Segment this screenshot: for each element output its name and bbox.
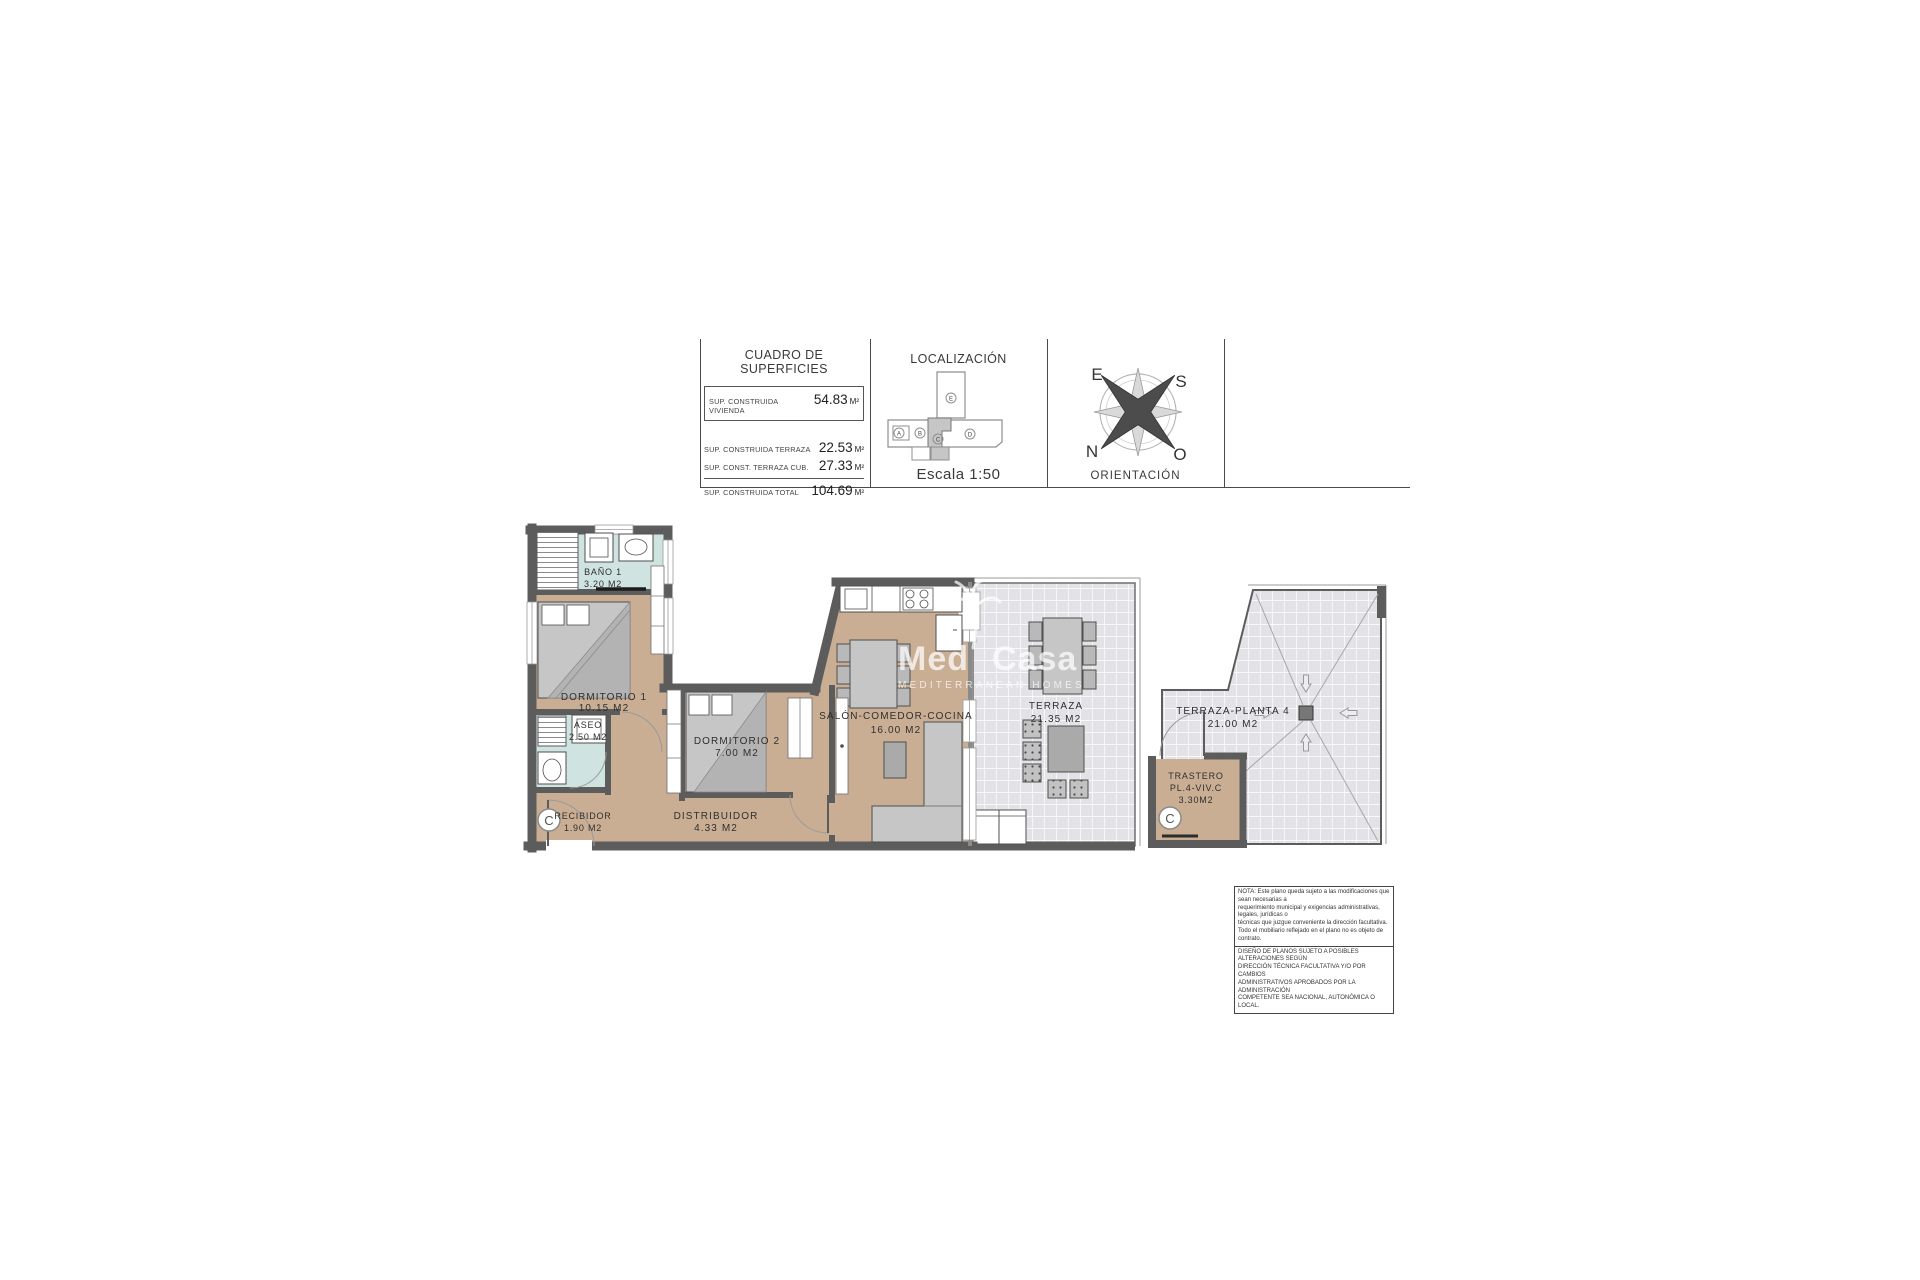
drain: [1299, 706, 1313, 720]
compass-s: S: [1175, 372, 1186, 391]
room-label: BAÑO 1: [584, 567, 622, 577]
wall-stub: [1377, 586, 1386, 618]
room-label: DISTRIBUIDOR: [674, 811, 759, 822]
room-label: DORMITORIO 1: [561, 692, 647, 703]
legal-notes: NOTA: Este plano queda sujeto a las modi…: [1234, 886, 1394, 1014]
kitchen-counter: [840, 586, 962, 612]
room-area: 10.15 M2: [579, 703, 630, 714]
room-label: SALÓN-COMEDOR-COCINA: [819, 709, 973, 722]
room-area: 16.00 M2: [871, 725, 922, 736]
unit-letter: C: [544, 813, 553, 828]
site-square-1: [912, 447, 930, 460]
site-letter-a: A: [897, 432, 901, 438]
room-label: ASEO: [574, 720, 602, 730]
watermark-word1: Med: [898, 640, 969, 678]
toilet-icon: [538, 752, 566, 784]
room-area: 1.90 M2: [564, 823, 602, 833]
site-letter-c: C: [936, 438, 941, 444]
note-nota: NOTA: Este plano queda sujeto a las modi…: [1234, 886, 1394, 947]
floorplan-page: { "header": { "surface_table": { "title"…: [0, 0, 1920, 1280]
room-label: TERRAZA: [1029, 701, 1083, 712]
compass-dark-star: [1064, 338, 1211, 485]
terraza-covered: [973, 578, 1140, 846]
coffee-table-icon: [884, 742, 906, 778]
compass-o: O: [1173, 445, 1186, 464]
washbasin-icon: [585, 533, 613, 562]
shower-icon: [538, 716, 566, 746]
site-square-2: [931, 447, 949, 460]
site-plan: A B C D E: [888, 372, 1002, 460]
room-sub: PL.4-VIV.C: [1170, 783, 1222, 793]
watermark-word2: Casa: [992, 640, 1077, 678]
room-area: 21.00 M2: [1208, 719, 1259, 730]
floorplan-drawing: A B C D E E S N O: [0, 0, 1920, 1280]
compass-e: E: [1091, 365, 1102, 384]
wardrobe-icon: [651, 566, 664, 654]
site-block-e-outline: [937, 372, 965, 418]
shower-icon: [537, 532, 578, 590]
wardrobe-icon: [667, 690, 681, 793]
cooktop-icon: [903, 588, 933, 610]
watermark-subtitle: MEDITERRANEAN HOMES: [898, 680, 1085, 691]
room-area: 21.35 M2: [1031, 714, 1082, 725]
unit-letter: C: [1165, 811, 1174, 826]
compass-rose-icon: E S N O: [1064, 338, 1211, 485]
room-label: RECIBIDOR: [554, 811, 611, 821]
toilet-icon: [619, 534, 653, 561]
room-area: 3.20 M2: [584, 579, 622, 589]
room-label: TERRAZA-PLANTA 4: [1176, 706, 1290, 717]
site-letter-e: E: [949, 397, 953, 403]
terrace-cabinet: [973, 810, 1026, 844]
site-letter-b: B: [918, 432, 922, 438]
room-label: TRASTERO: [1168, 771, 1223, 781]
room-area: 2.50 M2: [569, 732, 607, 742]
note-diseno: DISEÑO DE PLANOS SUJETO A POSIBLES ALTER…: [1234, 946, 1394, 1014]
room-area: 3.30M2: [1179, 795, 1214, 805]
compass-n: N: [1086, 442, 1098, 461]
room-area: 7.00 M2: [715, 748, 759, 759]
room-label: DORMITORIO 2: [694, 736, 780, 747]
entry-opening: [546, 840, 592, 852]
room-area: 4.33 M2: [694, 823, 738, 834]
site-letter-d: D: [968, 433, 973, 439]
